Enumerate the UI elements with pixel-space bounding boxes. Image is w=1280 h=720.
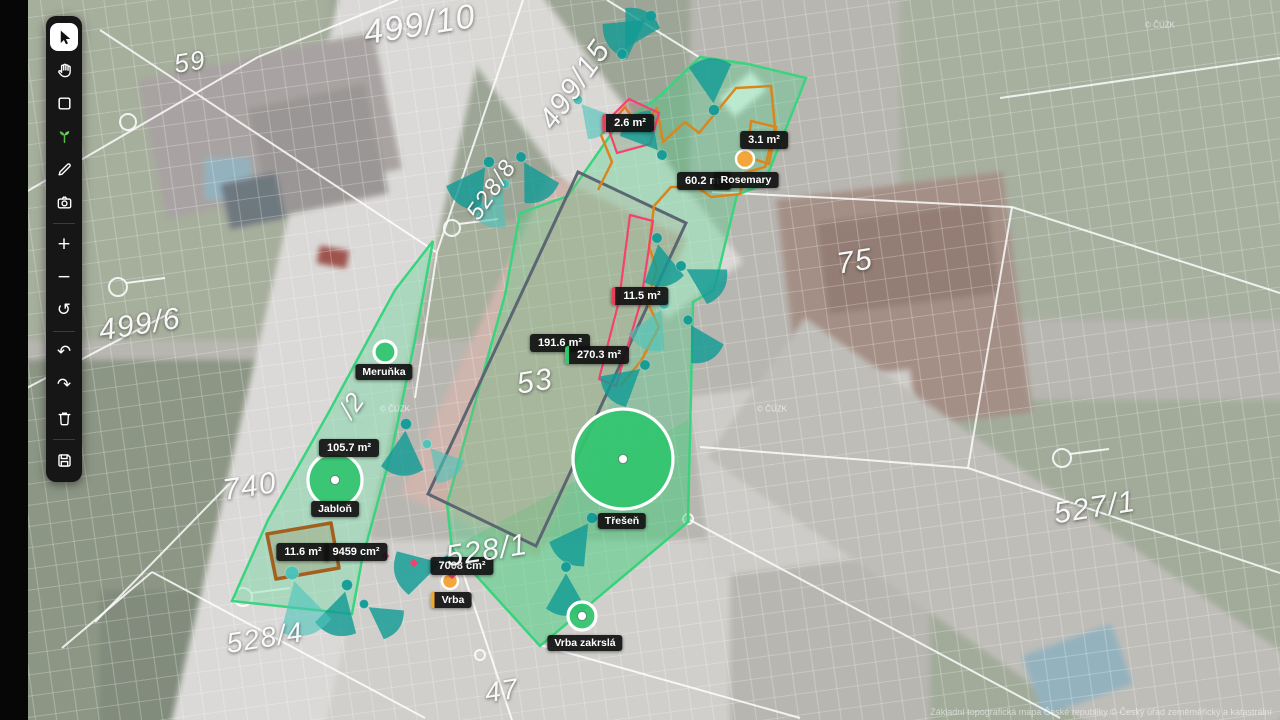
boundary-point-marker <box>109 278 127 296</box>
save-tool[interactable] <box>47 444 81 477</box>
plant-label[interactable]: Vrba zakrslá <box>547 635 622 651</box>
parcel-boundary-line <box>1012 207 1280 293</box>
cursor-tool[interactable] <box>50 23 78 51</box>
boundary-point-marker <box>444 220 460 236</box>
left-black-bar <box>0 0 28 720</box>
parcel-boundary-line <box>540 645 800 718</box>
toolbar-divider <box>53 331 75 332</box>
tree-canopy-circle[interactable] <box>308 453 362 507</box>
pencil-icon <box>56 161 73 178</box>
tree-canopy-circle[interactable] <box>374 341 396 363</box>
parcel-boundary-line <box>690 520 1060 718</box>
parcel-boundary-line <box>95 480 233 622</box>
plant-label[interactable]: Vrba <box>431 592 472 608</box>
undo-tool[interactable]: ↶ <box>47 336 81 369</box>
boundary-point-tail <box>126 278 165 283</box>
parcel-boundary-line <box>0 57 258 207</box>
measurement-label[interactable]: 3.1 m² <box>740 131 788 149</box>
plant-label[interactable]: Meruňka <box>355 364 412 380</box>
trash-icon <box>56 410 73 427</box>
plant-icon <box>56 128 73 145</box>
pencil-tool[interactable] <box>47 153 81 186</box>
parcel-boundary-line <box>968 468 1280 573</box>
measurement-label[interactable]: 7008 cm² <box>430 557 493 575</box>
measurement-label[interactable]: 11.6 m² <box>276 543 329 561</box>
measurement-label[interactable]: 270.3 m² <box>565 346 629 364</box>
tree-canopy-circle[interactable] <box>568 602 596 630</box>
plant-label[interactable]: Rosemary <box>714 172 779 188</box>
parcel-boundary-line <box>700 447 968 468</box>
hand-tool[interactable] <box>47 54 81 87</box>
parcel-boundary-line <box>258 0 398 57</box>
toolbar-divider <box>53 223 75 224</box>
measurement-label[interactable]: 9459 cm² <box>324 543 387 561</box>
parcel-boundary-line <box>100 30 436 252</box>
parcel-boundary-line <box>712 192 1012 207</box>
tree-cone-symbol[interactable] <box>350 587 409 643</box>
undo-icon: ↶ <box>57 344 71 361</box>
camera-tool[interactable] <box>47 186 81 219</box>
measurement-label[interactable]: 2.6 m² <box>602 114 654 132</box>
boundary-point-marker <box>120 114 136 130</box>
tree-canopy-circle[interactable] <box>573 409 673 509</box>
trash-tool[interactable] <box>47 402 81 435</box>
measurement-label[interactable]: 105.7 m² <box>319 439 379 457</box>
camera-icon <box>56 194 73 211</box>
rect-icon <box>56 95 73 112</box>
save-icon <box>56 452 73 469</box>
rect-tool[interactable] <box>47 87 81 120</box>
tree-center-dot <box>578 612 587 621</box>
tree-center-dot <box>619 455 628 464</box>
zoom-in-tool[interactable]: + <box>47 228 81 261</box>
zoom-out-icon: − <box>57 269 71 286</box>
rotate-tool[interactable]: ↺ <box>47 294 81 327</box>
plant-label[interactable]: Třešeň <box>598 513 646 529</box>
plant-label[interactable]: Jabloň <box>311 501 359 517</box>
boundary-point-marker <box>475 650 485 660</box>
redo-tool[interactable]: ↷ <box>47 369 81 402</box>
hand-icon <box>56 62 73 79</box>
tree-center-dot <box>331 476 340 485</box>
cursor-icon <box>56 29 73 46</box>
rotate-icon: ↺ <box>57 302 71 319</box>
map-overlay <box>0 0 1280 720</box>
zoom-in-icon: + <box>57 236 71 253</box>
parcel-boundary-line <box>968 207 1012 468</box>
parcel-boundary-line <box>62 572 152 648</box>
measurement-label[interactable]: 11.5 m² <box>611 287 668 305</box>
plant-point-marker[interactable] <box>736 150 754 168</box>
plant-tool[interactable] <box>47 120 81 153</box>
parcel-boundary-line <box>1000 58 1280 98</box>
boundary-point-marker <box>1053 449 1071 467</box>
redo-icon: ↷ <box>57 377 71 394</box>
toolbar: +−↺↶↷ <box>46 16 82 482</box>
garden-planner-app: 2.6 m²3.1 m²60.2 m²11.5 m²191.6 m²270.3 … <box>0 0 1280 720</box>
map-attribution: Základní topografická mapa České republi… <box>930 707 1272 717</box>
toolbar-divider <box>53 439 75 440</box>
tree-cone-symbol[interactable] <box>501 142 563 209</box>
zoom-out-tool[interactable]: − <box>47 261 81 294</box>
boundary-point-tail <box>1070 449 1109 454</box>
